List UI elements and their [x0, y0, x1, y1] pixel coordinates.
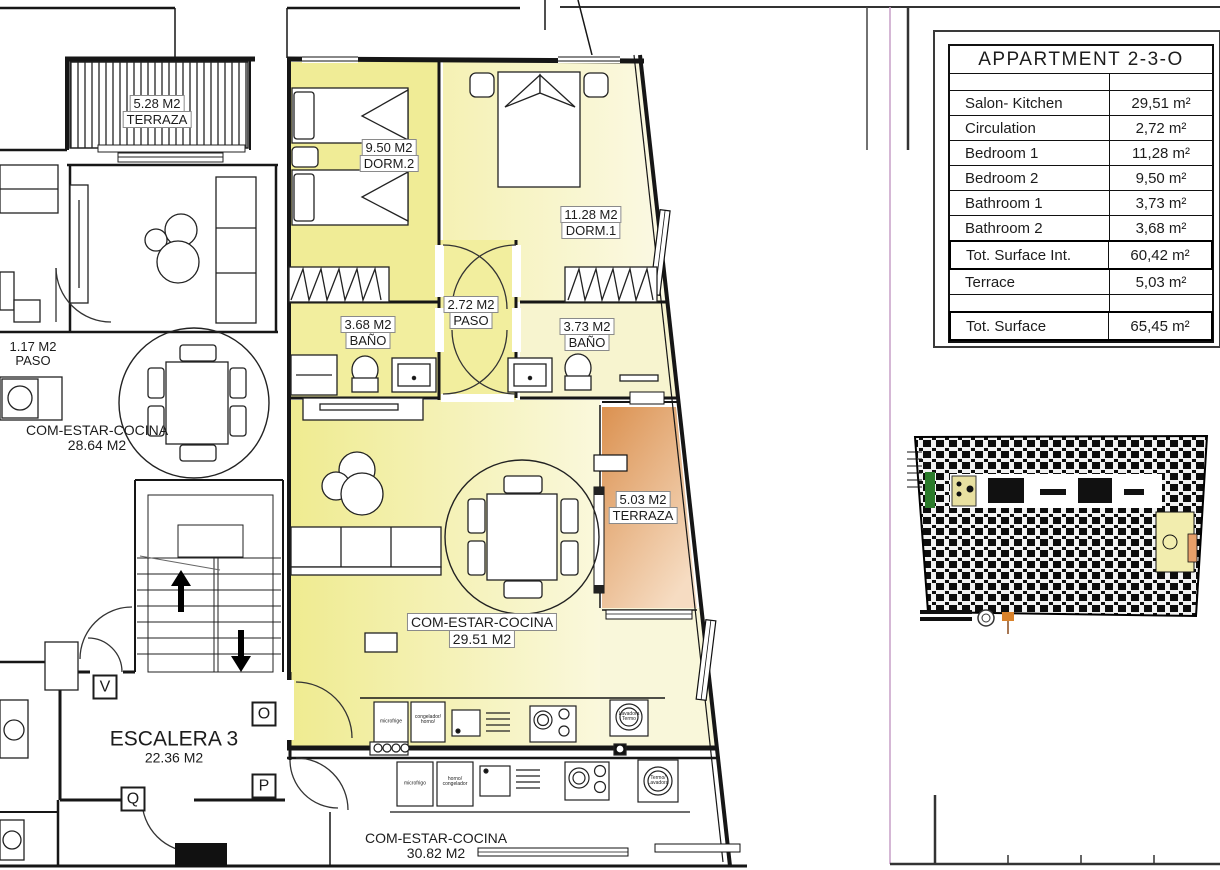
appliance-label-washer1: Lavadora Termo	[619, 712, 640, 722]
table-row-bedroom1: Bedroom 1 11,28 m²	[950, 141, 1212, 166]
appliance-label-washer2: Termo/ Lavadora	[648, 776, 669, 786]
room-label-salon-2864: COM-ESTAR-COCINA 28.64 M2	[23, 423, 171, 453]
door-letter-o: O	[252, 702, 277, 727]
room-label-paso: 2.72 M2 PASO	[444, 297, 499, 329]
door-letter-v: V	[93, 675, 118, 700]
room-label-dorm2: 9.50 M2 DORM.2	[360, 140, 419, 172]
key-plan-thumbnail	[907, 436, 1207, 634]
door-letter-q: Q	[121, 787, 146, 812]
table-row-bathroom1: Bathroom 1 3,73 m²	[950, 191, 1212, 216]
room-label-escalera: ESCALERA 3 22.36 M2	[107, 729, 241, 766]
table-row-circulation: Circulation 2,72 m²	[950, 116, 1212, 141]
room-label-bano-368: 3.68 M2 BAÑO	[341, 317, 396, 349]
stairs	[137, 495, 281, 867]
room-label-dorm1: 11.28 M2 DORM.1	[560, 207, 621, 239]
room-label-bano-373: 3.73 M2 BAÑO	[560, 319, 615, 351]
table-row-bedroom2: Bedroom 2 9,50 m²	[950, 166, 1212, 191]
room-label-salon-2951: COM-ESTAR-COCINA 29.51 M2	[407, 614, 557, 648]
room-label-paso-117: 1.17 M2 PASO	[7, 340, 60, 368]
table-row-total-interior: Tot. Surface Int. 60,42 m²	[949, 240, 1213, 270]
table-spacer-row	[950, 74, 1212, 91]
room-label-terraza-503: 5.03 M2 TERRAZA	[609, 492, 678, 524]
floor-plan-sheet: 5.28 M2 TERRAZA 9.50 M2 DORM.2 11.28 M2 …	[0, 0, 1220, 870]
appliance-label-fridge2: microfrigo	[404, 782, 426, 787]
appliance-label-oven2: horno/ congelador	[443, 777, 468, 787]
table-spacer-row	[950, 295, 1212, 312]
table-row-salon-kitchen: Salon- Kitchen 29,51 m²	[950, 91, 1212, 116]
apartment-table-title: APPARTMENT 2-3-O	[950, 46, 1212, 74]
door-letter-p: P	[252, 774, 277, 799]
appliance-label-freezer1: congelador/ horno/	[415, 715, 441, 725]
apartment-summary-table: APPARTMENT 2-3-O Salon- Kitchen 29,51 m²…	[948, 44, 1214, 343]
room-label-terraza-528: 5.28 M2 TERRAZA	[123, 96, 192, 128]
appliance-label-fridge1: microfrige	[380, 720, 402, 725]
table-row-total-surface: Tot. Surface 65,45 m²	[949, 311, 1213, 341]
room-label-salon-3082: COM-ESTAR-COCINA 30.82 M2	[362, 831, 510, 861]
table-row-terrace: Terrace 5,03 m²	[950, 270, 1212, 295]
table-row-bathroom2: Bathroom 2 3,68 m²	[950, 216, 1212, 241]
